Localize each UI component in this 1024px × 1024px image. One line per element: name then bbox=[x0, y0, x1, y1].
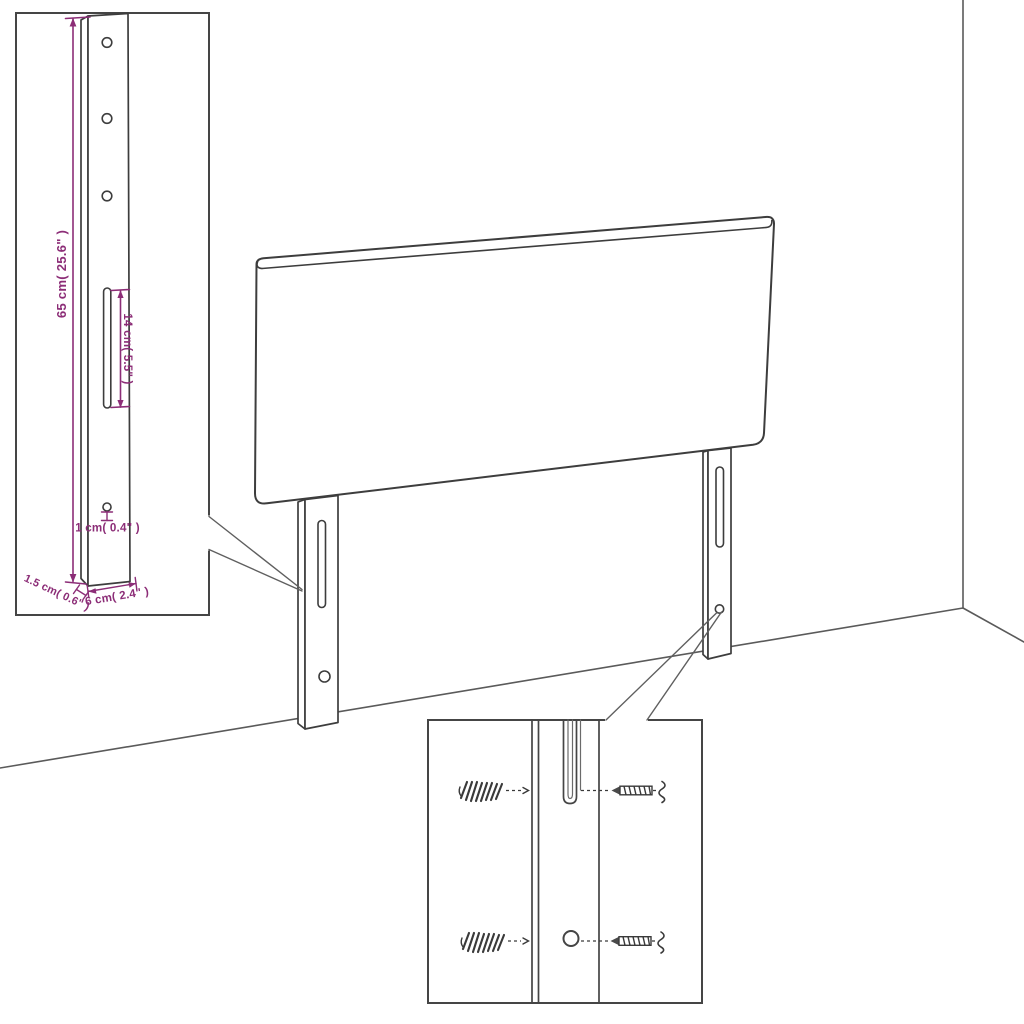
bracket-front-face bbox=[88, 14, 130, 587]
label-slot-length: 14 cm( 5.5" ) bbox=[121, 313, 134, 384]
label-hole-diameter: 1 cm( 0.4" ) bbox=[75, 522, 140, 535]
panel-outline bbox=[255, 217, 774, 504]
detail-inset-mounting bbox=[428, 612, 722, 1003]
left-leg-side-face bbox=[298, 500, 305, 730]
label-leg-height: 65 cm( 25.6" ) bbox=[54, 230, 69, 318]
callout-wedge-line-upper bbox=[209, 517, 302, 590]
callout-wedge-line-lower bbox=[209, 550, 302, 592]
bracket-side-face bbox=[81, 16, 88, 586]
floor-line-right bbox=[963, 608, 1024, 642]
headboard-dimension-diagram: 65 cm( 25.6" ) 14 cm( 5.5" ) 1 cm( 0.4" … bbox=[0, 0, 1024, 1024]
callout-wedge-line-right bbox=[647, 612, 722, 720]
headboard-panel bbox=[255, 217, 774, 504]
diagram-canvas: 65 cm( 25.6" ) 14 cm( 5.5" ) 1 cm( 0.4" … bbox=[0, 0, 1024, 1024]
inset-mounting-box bbox=[428, 720, 702, 1003]
left-leg-front-face bbox=[305, 496, 338, 730]
callout-wedge-line-left bbox=[606, 613, 717, 721]
